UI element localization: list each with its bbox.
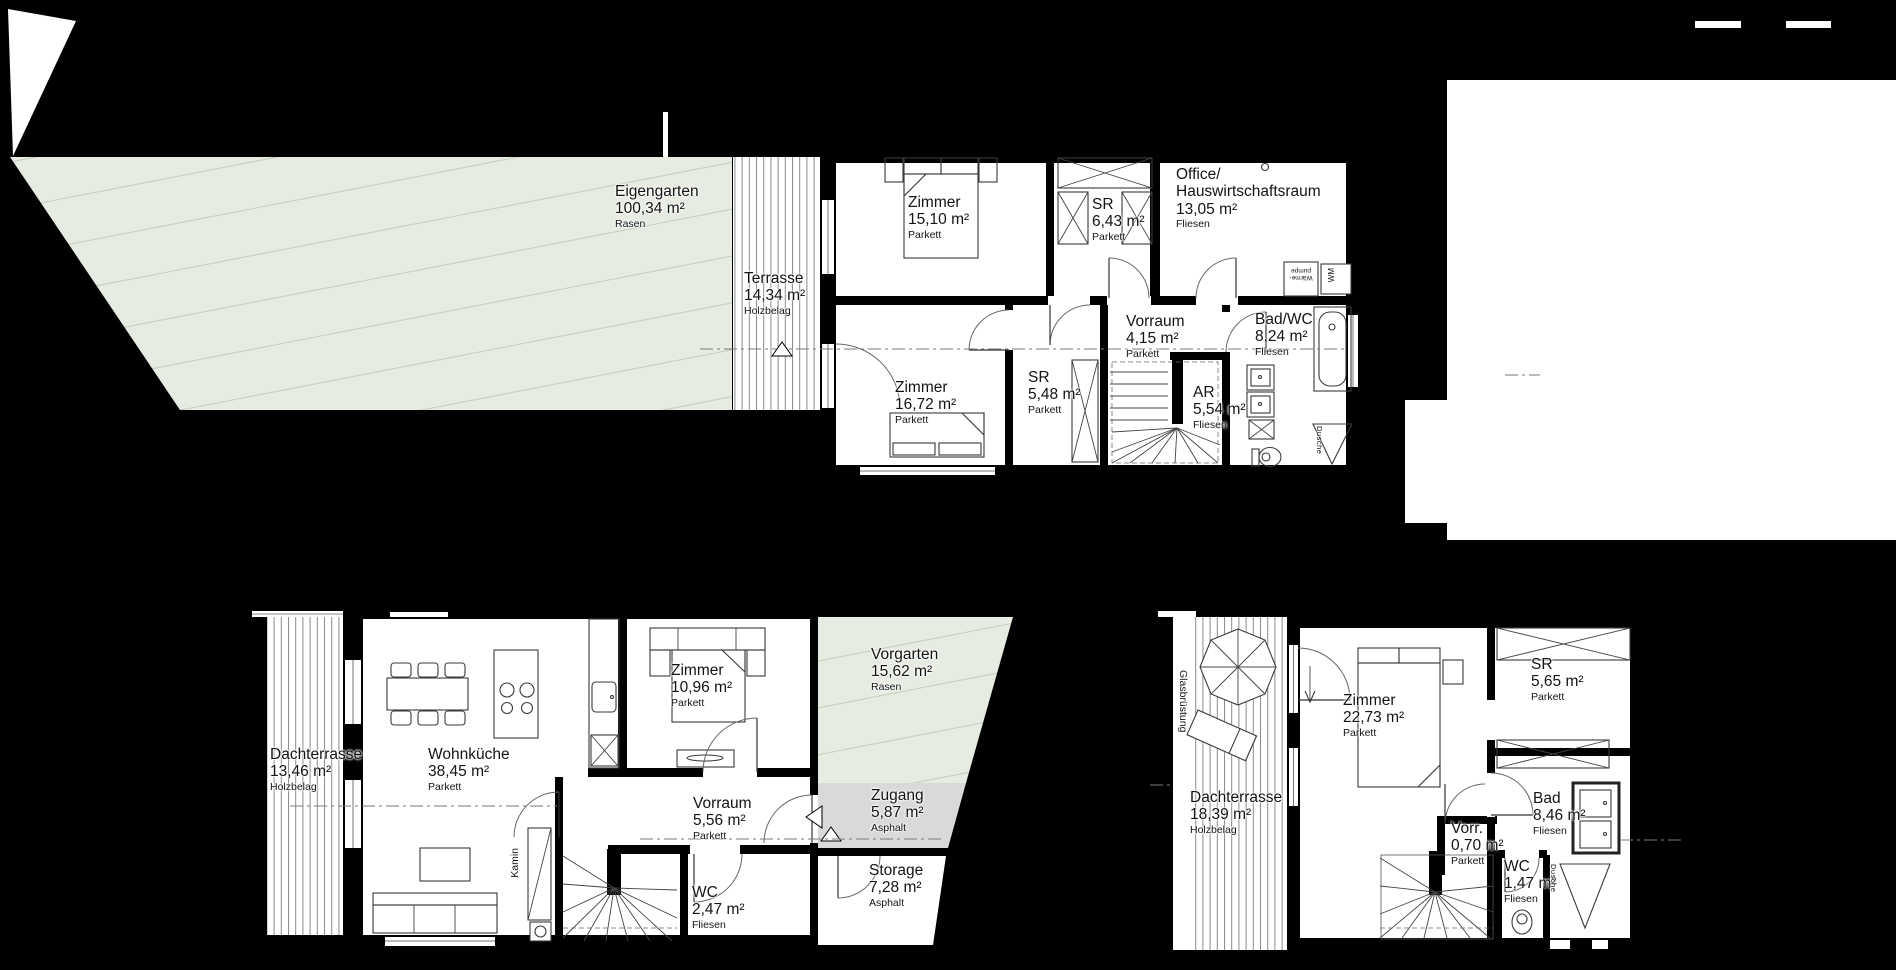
front-garden-lawn — [818, 617, 1013, 783]
room-label-wc-dg: WC 2,47 m² Fliesen — [692, 884, 745, 931]
room-label-vorr-dg: Vorr. 0,70 m² Parkett — [1451, 820, 1504, 867]
room-label-sr-og2: SR 5,48 m² Parkett — [1028, 369, 1081, 416]
unit-upper-floorplan — [10, 112, 1360, 477]
floorplan-canvas: Eigengarten 100,34 m² Rasen Terrasse 14,… — [0, 0, 1896, 970]
legend-bar — [1786, 21, 1831, 28]
room-label-vorgarten: Vorgarten 15,62 m² Rasen — [871, 646, 938, 693]
room-label-ar: AR 5,54 m² Fliesen — [1193, 384, 1246, 431]
annotation-wm: WM — [1327, 268, 1336, 282]
room-label-office: Office/ Hauswirtschaftsraum 13,05 m² Fli… — [1176, 166, 1321, 231]
parasol-icon — [1200, 629, 1276, 705]
annotation-glasbruestung: Glasbrüstung — [1177, 670, 1189, 732]
room-label-zimmer-og2: Zimmer 16,72 m² Parkett — [895, 379, 956, 426]
room-label-storage: Storage 7,28 m² Asphalt — [869, 862, 923, 909]
annotation-dusche-dg: Dusche — [1549, 864, 1558, 892]
room-label-zimmer-og1: Zimmer 15,10 m² Parkett — [908, 194, 969, 241]
room-label-eigengarten: Eigengarten 100,34 m² Rasen — [615, 183, 699, 230]
annotation-waermepumpe: Wärme- pumpe — [1284, 266, 1318, 281]
room-label-bad-dg: Bad 8,46 m² Fliesen — [1533, 790, 1586, 837]
room-label-sr-dg: SR 5,65 m² Parkett — [1531, 656, 1584, 703]
room-label-zugang: Zugang 5,87 m² Asphalt — [871, 787, 924, 834]
room-label-sr-og1: SR 6,43 m² Parkett — [1092, 196, 1145, 243]
annotation-kamin: Kamin — [509, 848, 521, 878]
room-label-dachterrasse-a: Dachterrasse 13,46 m² Holzbelag — [270, 746, 362, 793]
unit-lower-right-floorplan — [1150, 611, 1684, 955]
room-label-zimmer-dg1: Zimmer 10,96 m² Parkett — [671, 662, 732, 709]
floorplan-graphics — [0, 0, 1896, 970]
room-label-terrasse: Terrasse 14,34 m² Holzbelag — [744, 270, 805, 317]
room-label-vorraum-dg: Vorraum 5,56 m² Parkett — [693, 795, 752, 842]
annotation-dusche-og: Dusche — [1315, 426, 1324, 454]
room-label-zimmer-dg2: Zimmer 22,73 m² Parkett — [1343, 692, 1404, 739]
room-label-badwc: Bad/WC 8,24 m² Fliesen — [1255, 311, 1313, 358]
fireplace-icon — [528, 828, 551, 941]
legend-bar — [1695, 21, 1741, 28]
room-label-dachterrasse-b: Dachterrasse 18,39 m² Holzbelag — [1190, 789, 1282, 836]
room-label-wohnkueche: Wohnküche 38,45 m² Parkett — [428, 746, 510, 793]
room-label-vorraum-og: Vorraum 4,15 m² Parkett — [1126, 313, 1185, 360]
